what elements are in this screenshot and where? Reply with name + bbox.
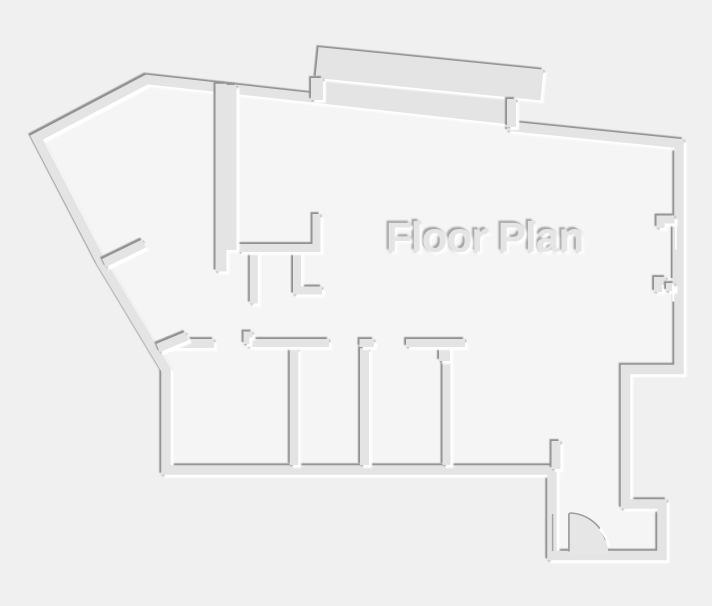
svg-text:Floor Plan: Floor Plan xyxy=(386,214,583,261)
